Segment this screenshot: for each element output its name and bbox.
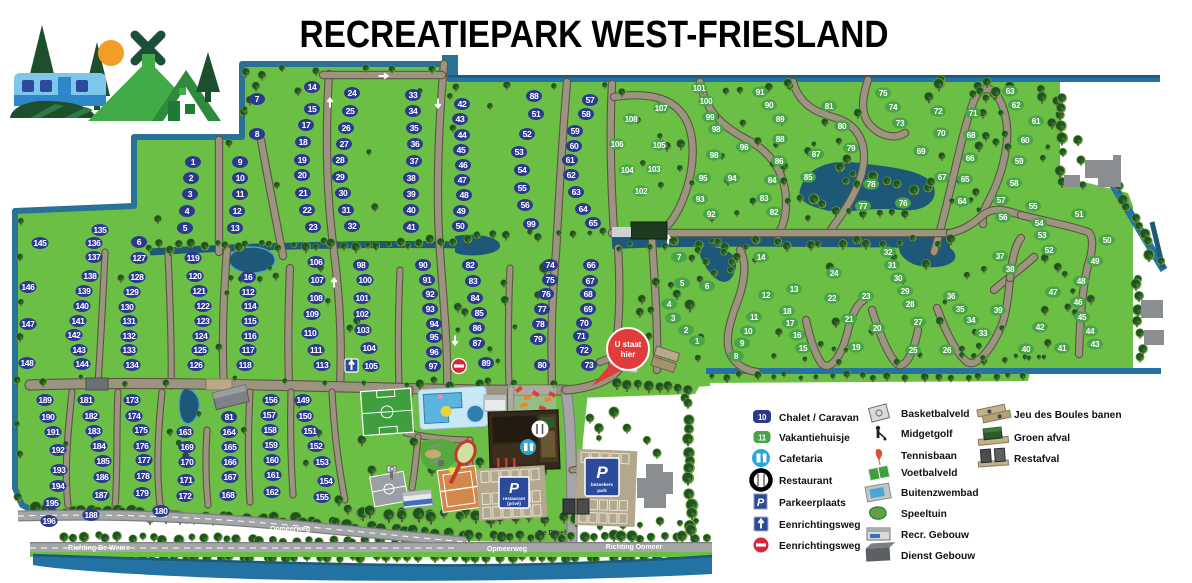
svg-text:119: 119 xyxy=(187,253,200,263)
svg-text:42: 42 xyxy=(458,99,467,109)
svg-text:56: 56 xyxy=(999,213,1008,222)
svg-text:71: 71 xyxy=(577,331,586,341)
svg-text:85: 85 xyxy=(804,173,813,182)
svg-text:73: 73 xyxy=(585,360,594,370)
svg-text:87: 87 xyxy=(812,150,821,159)
svg-text:195: 195 xyxy=(45,498,59,508)
svg-text:71: 71 xyxy=(969,109,978,118)
svg-text:Tennisbaan: Tennisbaan xyxy=(901,451,957,462)
svg-text:150: 150 xyxy=(298,411,312,421)
svg-text:194: 194 xyxy=(51,481,65,491)
svg-text:156: 156 xyxy=(264,395,278,405)
svg-text:15: 15 xyxy=(799,344,808,353)
svg-text:86: 86 xyxy=(473,323,482,333)
svg-text:60: 60 xyxy=(1021,136,1030,145)
svg-text:114: 114 xyxy=(244,301,257,311)
svg-text:24: 24 xyxy=(348,88,357,98)
svg-text:76: 76 xyxy=(899,199,908,208)
svg-text:78: 78 xyxy=(867,180,876,189)
svg-text:26: 26 xyxy=(943,346,952,355)
svg-text:37: 37 xyxy=(996,252,1005,261)
svg-text:124: 124 xyxy=(194,331,208,341)
svg-text:129: 129 xyxy=(125,287,139,297)
svg-text:94: 94 xyxy=(728,174,737,183)
svg-text:53: 53 xyxy=(1038,231,1047,240)
svg-text:P: P xyxy=(509,480,520,497)
svg-text:117: 117 xyxy=(242,345,255,355)
svg-text:158: 158 xyxy=(263,425,277,435)
svg-text:105: 105 xyxy=(653,141,667,150)
svg-text:162: 162 xyxy=(265,487,279,497)
svg-text:3: 3 xyxy=(671,314,676,323)
svg-text:84: 84 xyxy=(768,176,777,185)
svg-text:105: 105 xyxy=(364,361,378,371)
svg-text:14: 14 xyxy=(757,253,766,262)
svg-text:hier: hier xyxy=(621,350,636,359)
svg-text:142: 142 xyxy=(67,330,81,340)
svg-text:141: 141 xyxy=(71,316,85,326)
svg-text:175: 175 xyxy=(134,425,148,435)
svg-text:148: 148 xyxy=(20,358,34,368)
svg-text:112: 112 xyxy=(242,287,255,297)
svg-text:27: 27 xyxy=(340,139,349,149)
svg-text:Opmeerweg: Opmeerweg xyxy=(270,526,310,533)
svg-text:63: 63 xyxy=(1006,87,1015,96)
svg-text:11: 11 xyxy=(236,189,245,199)
svg-text:10: 10 xyxy=(758,413,767,422)
svg-text:7: 7 xyxy=(255,94,260,104)
svg-text:9: 9 xyxy=(238,157,243,167)
svg-text:51: 51 xyxy=(532,109,541,119)
svg-text:177: 177 xyxy=(137,455,151,465)
svg-text:192: 192 xyxy=(51,445,65,455)
svg-text:143: 143 xyxy=(72,345,86,355)
svg-text:155: 155 xyxy=(315,492,329,502)
svg-text:160: 160 xyxy=(265,455,279,465)
svg-text:68: 68 xyxy=(967,131,976,140)
svg-text:41: 41 xyxy=(1058,344,1067,353)
svg-text:31: 31 xyxy=(342,205,351,215)
svg-text:46: 46 xyxy=(1074,298,1083,307)
svg-text:191: 191 xyxy=(46,427,60,437)
svg-text:P: P xyxy=(757,497,765,509)
svg-text:179: 179 xyxy=(135,488,149,498)
svg-text:Restaurant: Restaurant xyxy=(779,476,833,487)
svg-text:64: 64 xyxy=(579,204,588,214)
svg-text:81: 81 xyxy=(825,102,834,111)
svg-text:29: 29 xyxy=(901,287,910,296)
svg-text:15: 15 xyxy=(308,104,317,114)
svg-text:133: 133 xyxy=(122,345,136,355)
svg-text:58: 58 xyxy=(582,109,591,119)
svg-text:Richting Oomeer: Richting Oomeer xyxy=(606,544,663,551)
svg-text:95: 95 xyxy=(430,332,439,342)
svg-text:189: 189 xyxy=(38,395,52,405)
svg-text:36: 36 xyxy=(411,139,420,149)
svg-text:4: 4 xyxy=(185,206,190,216)
svg-text:100: 100 xyxy=(700,97,714,106)
svg-text:Parkeerplaats: Parkeerplaats xyxy=(779,498,846,509)
svg-text:168: 168 xyxy=(221,490,235,500)
svg-text:86: 86 xyxy=(775,157,784,166)
svg-text:59: 59 xyxy=(571,126,580,136)
svg-text:88: 88 xyxy=(530,91,539,101)
svg-text:Recr. Gebouw: Recr. Gebouw xyxy=(901,530,969,541)
svg-text:115: 115 xyxy=(244,316,257,326)
svg-text:91: 91 xyxy=(423,275,432,285)
svg-text:146: 146 xyxy=(21,282,35,292)
svg-text:174: 174 xyxy=(127,411,141,421)
svg-text:22: 22 xyxy=(828,294,837,303)
svg-text:130: 130 xyxy=(120,302,134,312)
svg-text:173: 173 xyxy=(125,395,139,405)
svg-text:110: 110 xyxy=(304,328,317,338)
svg-text:Speeltuin: Speeltuin xyxy=(901,509,947,520)
svg-text:109: 109 xyxy=(305,309,319,319)
svg-text:152: 152 xyxy=(309,441,323,451)
svg-text:3: 3 xyxy=(188,189,193,199)
svg-text:170: 170 xyxy=(180,457,194,467)
svg-text:Midgetgolf: Midgetgolf xyxy=(901,429,953,440)
svg-text:165: 165 xyxy=(223,442,237,452)
svg-text:182: 182 xyxy=(84,411,98,421)
svg-text:1: 1 xyxy=(191,157,196,167)
svg-text:89: 89 xyxy=(482,358,491,368)
svg-text:14: 14 xyxy=(308,82,317,92)
svg-text:90: 90 xyxy=(765,101,774,110)
svg-text:24: 24 xyxy=(830,269,839,278)
svg-text:126: 126 xyxy=(189,360,203,370)
svg-text:61: 61 xyxy=(566,155,575,165)
svg-text:40: 40 xyxy=(407,205,416,215)
svg-text:7: 7 xyxy=(677,253,682,262)
svg-text:103: 103 xyxy=(648,165,662,174)
svg-text:92: 92 xyxy=(426,289,435,299)
svg-text:Buitenzwembad: Buitenzwembad xyxy=(901,488,979,499)
svg-text:80: 80 xyxy=(538,360,547,370)
svg-text:102: 102 xyxy=(635,187,649,196)
svg-text:4: 4 xyxy=(667,300,672,309)
svg-text:78: 78 xyxy=(536,319,545,329)
svg-text:17: 17 xyxy=(786,319,795,328)
svg-text:95: 95 xyxy=(699,174,708,183)
svg-text:5: 5 xyxy=(680,279,685,288)
svg-text:De Dreef: De Dreef xyxy=(538,530,567,537)
svg-text:99: 99 xyxy=(706,113,715,122)
svg-text:32: 32 xyxy=(884,248,893,257)
svg-text:172: 172 xyxy=(178,491,192,501)
svg-text:bezoekers: bezoekers xyxy=(591,482,614,487)
svg-text:Voetbalveld: Voetbalveld xyxy=(901,468,957,479)
svg-text:10: 10 xyxy=(236,173,245,183)
svg-text:11: 11 xyxy=(750,313,759,322)
svg-text:184: 184 xyxy=(92,441,106,451)
svg-text:145: 145 xyxy=(33,238,47,248)
svg-text:2: 2 xyxy=(684,326,689,335)
svg-text:35: 35 xyxy=(410,123,419,133)
svg-text:8: 8 xyxy=(734,352,739,361)
svg-text:163: 163 xyxy=(178,427,192,437)
svg-text:138: 138 xyxy=(83,271,97,281)
svg-text:16: 16 xyxy=(793,331,802,340)
svg-text:123: 123 xyxy=(196,316,210,326)
svg-text:49: 49 xyxy=(457,206,466,216)
svg-text:72: 72 xyxy=(580,345,589,355)
svg-text:108: 108 xyxy=(309,293,323,303)
svg-text:48: 48 xyxy=(1077,277,1086,286)
svg-text:166: 166 xyxy=(223,457,237,467)
svg-text:54: 54 xyxy=(518,165,527,175)
svg-text:73: 73 xyxy=(896,119,905,128)
svg-text:116: 116 xyxy=(244,331,257,341)
svg-text:Jeu des Boules banen: Jeu des Boules banen xyxy=(1014,410,1122,421)
svg-text:1: 1 xyxy=(695,337,700,346)
svg-text:196: 196 xyxy=(42,516,56,526)
svg-text:106: 106 xyxy=(309,257,323,267)
svg-text:Dienst Gebouw: Dienst Gebouw xyxy=(901,551,975,562)
svg-text:104: 104 xyxy=(621,166,635,175)
svg-text:121: 121 xyxy=(192,286,206,296)
svg-text:34: 34 xyxy=(967,316,976,325)
svg-text:Restafval: Restafval xyxy=(1014,454,1059,465)
svg-text:18: 18 xyxy=(783,307,792,316)
svg-text:83: 83 xyxy=(760,194,769,203)
svg-text:49: 49 xyxy=(1091,257,1100,266)
svg-text:38: 38 xyxy=(407,173,416,183)
svg-text:147: 147 xyxy=(21,319,35,329)
svg-text:103: 103 xyxy=(356,325,370,335)
svg-text:167: 167 xyxy=(223,472,237,482)
svg-text:68: 68 xyxy=(584,289,593,299)
svg-text:25: 25 xyxy=(909,346,918,355)
svg-text:74: 74 xyxy=(889,103,898,112)
svg-text:21: 21 xyxy=(299,188,308,198)
svg-text:186: 186 xyxy=(95,472,109,482)
svg-text:55: 55 xyxy=(518,183,527,193)
svg-text:56: 56 xyxy=(521,200,530,210)
svg-text:111: 111 xyxy=(310,345,323,355)
svg-text:12: 12 xyxy=(233,206,242,216)
svg-text:93: 93 xyxy=(696,195,705,204)
svg-text:18: 18 xyxy=(299,137,308,147)
svg-text:183: 183 xyxy=(87,426,101,436)
svg-text:75: 75 xyxy=(546,275,555,285)
svg-text:park: park xyxy=(597,488,607,493)
svg-text:Chalet / Caravan: Chalet / Caravan xyxy=(779,413,859,424)
svg-text:28: 28 xyxy=(906,300,915,309)
svg-text:2: 2 xyxy=(189,173,194,183)
svg-text:53: 53 xyxy=(515,147,524,157)
svg-text:58: 58 xyxy=(1010,179,1019,188)
svg-text:19: 19 xyxy=(298,155,307,165)
svg-text:20: 20 xyxy=(873,324,882,333)
svg-text:84: 84 xyxy=(471,293,480,303)
svg-text:67: 67 xyxy=(938,173,947,182)
svg-text:176: 176 xyxy=(135,441,149,451)
svg-text:23: 23 xyxy=(862,292,871,301)
svg-text:26: 26 xyxy=(342,123,351,133)
svg-text:16: 16 xyxy=(244,272,253,282)
svg-text:185: 185 xyxy=(96,456,110,466)
svg-text:83: 83 xyxy=(469,276,478,286)
svg-text:29: 29 xyxy=(336,172,345,182)
svg-text:69: 69 xyxy=(584,304,593,314)
svg-text:178: 178 xyxy=(136,471,150,481)
svg-text:94: 94 xyxy=(430,319,439,329)
svg-text:102: 102 xyxy=(355,309,369,319)
svg-text:75: 75 xyxy=(879,89,888,98)
svg-text:19: 19 xyxy=(852,343,861,352)
svg-text:55: 55 xyxy=(1029,202,1038,211)
svg-text:Opmeerweg: Opmeerweg xyxy=(487,546,527,553)
svg-text:62: 62 xyxy=(1012,101,1021,110)
svg-text:144: 144 xyxy=(75,359,89,369)
svg-text:Eenrichtingsweg: Eenrichtingsweg xyxy=(779,541,861,552)
svg-text:91: 91 xyxy=(756,88,765,97)
svg-text:153: 153 xyxy=(315,457,329,467)
svg-text:P: P xyxy=(596,463,608,482)
svg-text:17: 17 xyxy=(302,120,311,130)
svg-text:120: 120 xyxy=(188,271,202,281)
svg-text:33: 33 xyxy=(409,90,418,100)
svg-text:U staat: U staat xyxy=(615,340,642,349)
svg-text:149: 149 xyxy=(296,395,310,405)
svg-text:44: 44 xyxy=(458,130,467,140)
svg-text:97: 97 xyxy=(429,361,438,371)
svg-text:12: 12 xyxy=(762,291,771,300)
svg-text:61: 61 xyxy=(1032,117,1041,126)
svg-text:45: 45 xyxy=(1078,313,1087,322)
svg-text:39: 39 xyxy=(994,306,1003,315)
svg-text:30: 30 xyxy=(894,274,903,283)
svg-text:66: 66 xyxy=(966,154,975,163)
svg-text:50: 50 xyxy=(456,221,465,231)
svg-text:40: 40 xyxy=(1022,345,1031,354)
svg-text:Groen afval: Groen afval xyxy=(1014,433,1070,444)
svg-text:70: 70 xyxy=(937,129,946,138)
svg-text:171: 171 xyxy=(179,475,193,485)
svg-text:100: 100 xyxy=(358,275,372,285)
svg-text:99: 99 xyxy=(527,219,536,229)
svg-text:43: 43 xyxy=(456,114,465,124)
svg-text:44: 44 xyxy=(1086,327,1095,336)
svg-text:6: 6 xyxy=(705,282,710,291)
svg-text:63: 63 xyxy=(572,187,581,197)
svg-text:154: 154 xyxy=(319,476,333,486)
svg-text:Vakantiehuisje: Vakantiehuisje xyxy=(779,433,850,444)
svg-text:38: 38 xyxy=(1006,265,1015,274)
svg-text:52: 52 xyxy=(523,129,532,139)
svg-text:82: 82 xyxy=(466,260,475,270)
svg-text:190: 190 xyxy=(41,412,55,422)
svg-text:57: 57 xyxy=(997,196,1006,205)
svg-text:101: 101 xyxy=(693,84,707,93)
svg-text:(privé): (privé) xyxy=(507,501,521,506)
svg-text:159: 159 xyxy=(264,440,278,450)
svg-text:180: 180 xyxy=(154,506,168,516)
svg-text:74: 74 xyxy=(546,260,555,270)
svg-text:107: 107 xyxy=(310,275,324,285)
svg-text:131: 131 xyxy=(122,316,136,326)
svg-text:59: 59 xyxy=(1015,157,1024,166)
svg-text:187: 187 xyxy=(94,490,108,500)
svg-text:132: 132 xyxy=(122,331,136,341)
svg-text:92: 92 xyxy=(707,210,716,219)
svg-text:46: 46 xyxy=(459,160,468,170)
svg-text:42: 42 xyxy=(1036,323,1045,332)
svg-text:69: 69 xyxy=(917,147,926,156)
svg-text:88: 88 xyxy=(776,135,785,144)
svg-text:181: 181 xyxy=(79,395,93,405)
svg-text:37: 37 xyxy=(410,156,419,166)
svg-text:32: 32 xyxy=(348,221,357,231)
svg-text:193: 193 xyxy=(52,465,66,475)
svg-text:65: 65 xyxy=(961,175,970,184)
svg-text:98: 98 xyxy=(710,151,719,160)
svg-text:151: 151 xyxy=(303,426,317,436)
svg-text:125: 125 xyxy=(193,345,207,355)
svg-text:35: 35 xyxy=(956,305,965,314)
svg-text:79: 79 xyxy=(534,334,543,344)
svg-text:48: 48 xyxy=(460,190,469,200)
svg-text:51: 51 xyxy=(1075,210,1084,219)
svg-text:13: 13 xyxy=(790,285,799,294)
svg-text:Basketbalveld: Basketbalveld xyxy=(901,409,970,420)
svg-text:164: 164 xyxy=(222,427,236,437)
svg-text:47: 47 xyxy=(1049,288,1058,297)
svg-text:137: 137 xyxy=(87,252,101,262)
svg-text:72: 72 xyxy=(934,107,943,116)
svg-text:107: 107 xyxy=(655,104,669,113)
svg-text:98: 98 xyxy=(712,125,721,134)
svg-text:76: 76 xyxy=(542,289,551,299)
svg-text:21: 21 xyxy=(845,315,854,324)
svg-text:22: 22 xyxy=(303,205,312,215)
svg-text:9: 9 xyxy=(740,339,745,348)
svg-text:39: 39 xyxy=(407,189,416,199)
svg-text:77: 77 xyxy=(538,304,547,314)
svg-text:25: 25 xyxy=(346,106,355,116)
svg-text:87: 87 xyxy=(473,338,482,348)
svg-text:98: 98 xyxy=(357,260,366,270)
svg-text:RECREATIEPARK WEST-FRIESLAND: RECREATIEPARK WEST-FRIESLAND xyxy=(300,14,889,56)
svg-text:188: 188 xyxy=(84,510,98,520)
svg-text:62: 62 xyxy=(567,170,576,180)
svg-text:85: 85 xyxy=(475,308,484,318)
svg-text:36: 36 xyxy=(947,292,956,301)
svg-text:Eenrichtingsweg: Eenrichtingsweg xyxy=(779,520,861,531)
svg-text:108: 108 xyxy=(625,115,639,124)
svg-text:118: 118 xyxy=(239,360,252,370)
svg-text:60: 60 xyxy=(570,141,579,151)
svg-text:67: 67 xyxy=(586,276,595,286)
svg-text:50: 50 xyxy=(1103,236,1112,245)
svg-text:106: 106 xyxy=(611,140,625,149)
svg-text:Richting De Weere: Richting De Weere xyxy=(68,545,130,552)
svg-text:41: 41 xyxy=(407,222,416,232)
svg-text:139: 139 xyxy=(77,286,91,296)
svg-text:136: 136 xyxy=(87,238,101,248)
svg-text:127: 127 xyxy=(132,253,146,263)
svg-text:13: 13 xyxy=(231,223,240,233)
svg-text:43: 43 xyxy=(1091,340,1100,349)
svg-text:64: 64 xyxy=(958,197,967,206)
svg-text:31: 31 xyxy=(888,261,897,270)
svg-text:157: 157 xyxy=(262,410,276,420)
svg-text:96: 96 xyxy=(740,143,749,152)
svg-text:82: 82 xyxy=(770,208,779,217)
svg-text:81: 81 xyxy=(225,412,234,422)
